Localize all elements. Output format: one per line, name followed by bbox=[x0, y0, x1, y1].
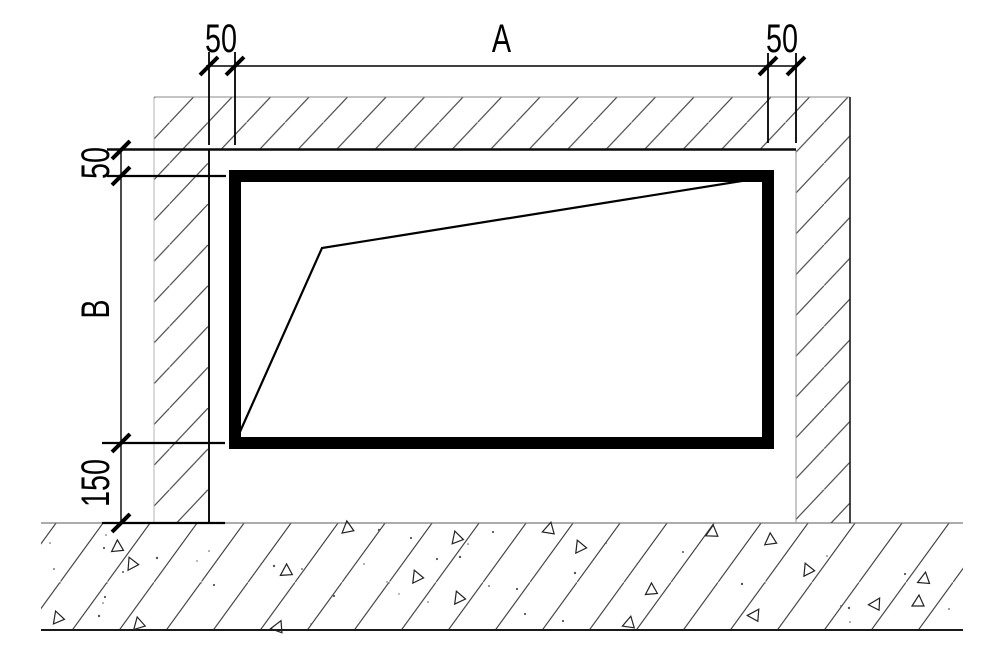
svg-text:A: A bbox=[492, 16, 512, 61]
svg-text:150: 150 bbox=[73, 459, 118, 507]
svg-text:50: 50 bbox=[73, 147, 118, 179]
svg-text:B: B bbox=[73, 299, 118, 318]
svg-text:50: 50 bbox=[766, 16, 798, 61]
svg-text:50: 50 bbox=[205, 16, 237, 61]
